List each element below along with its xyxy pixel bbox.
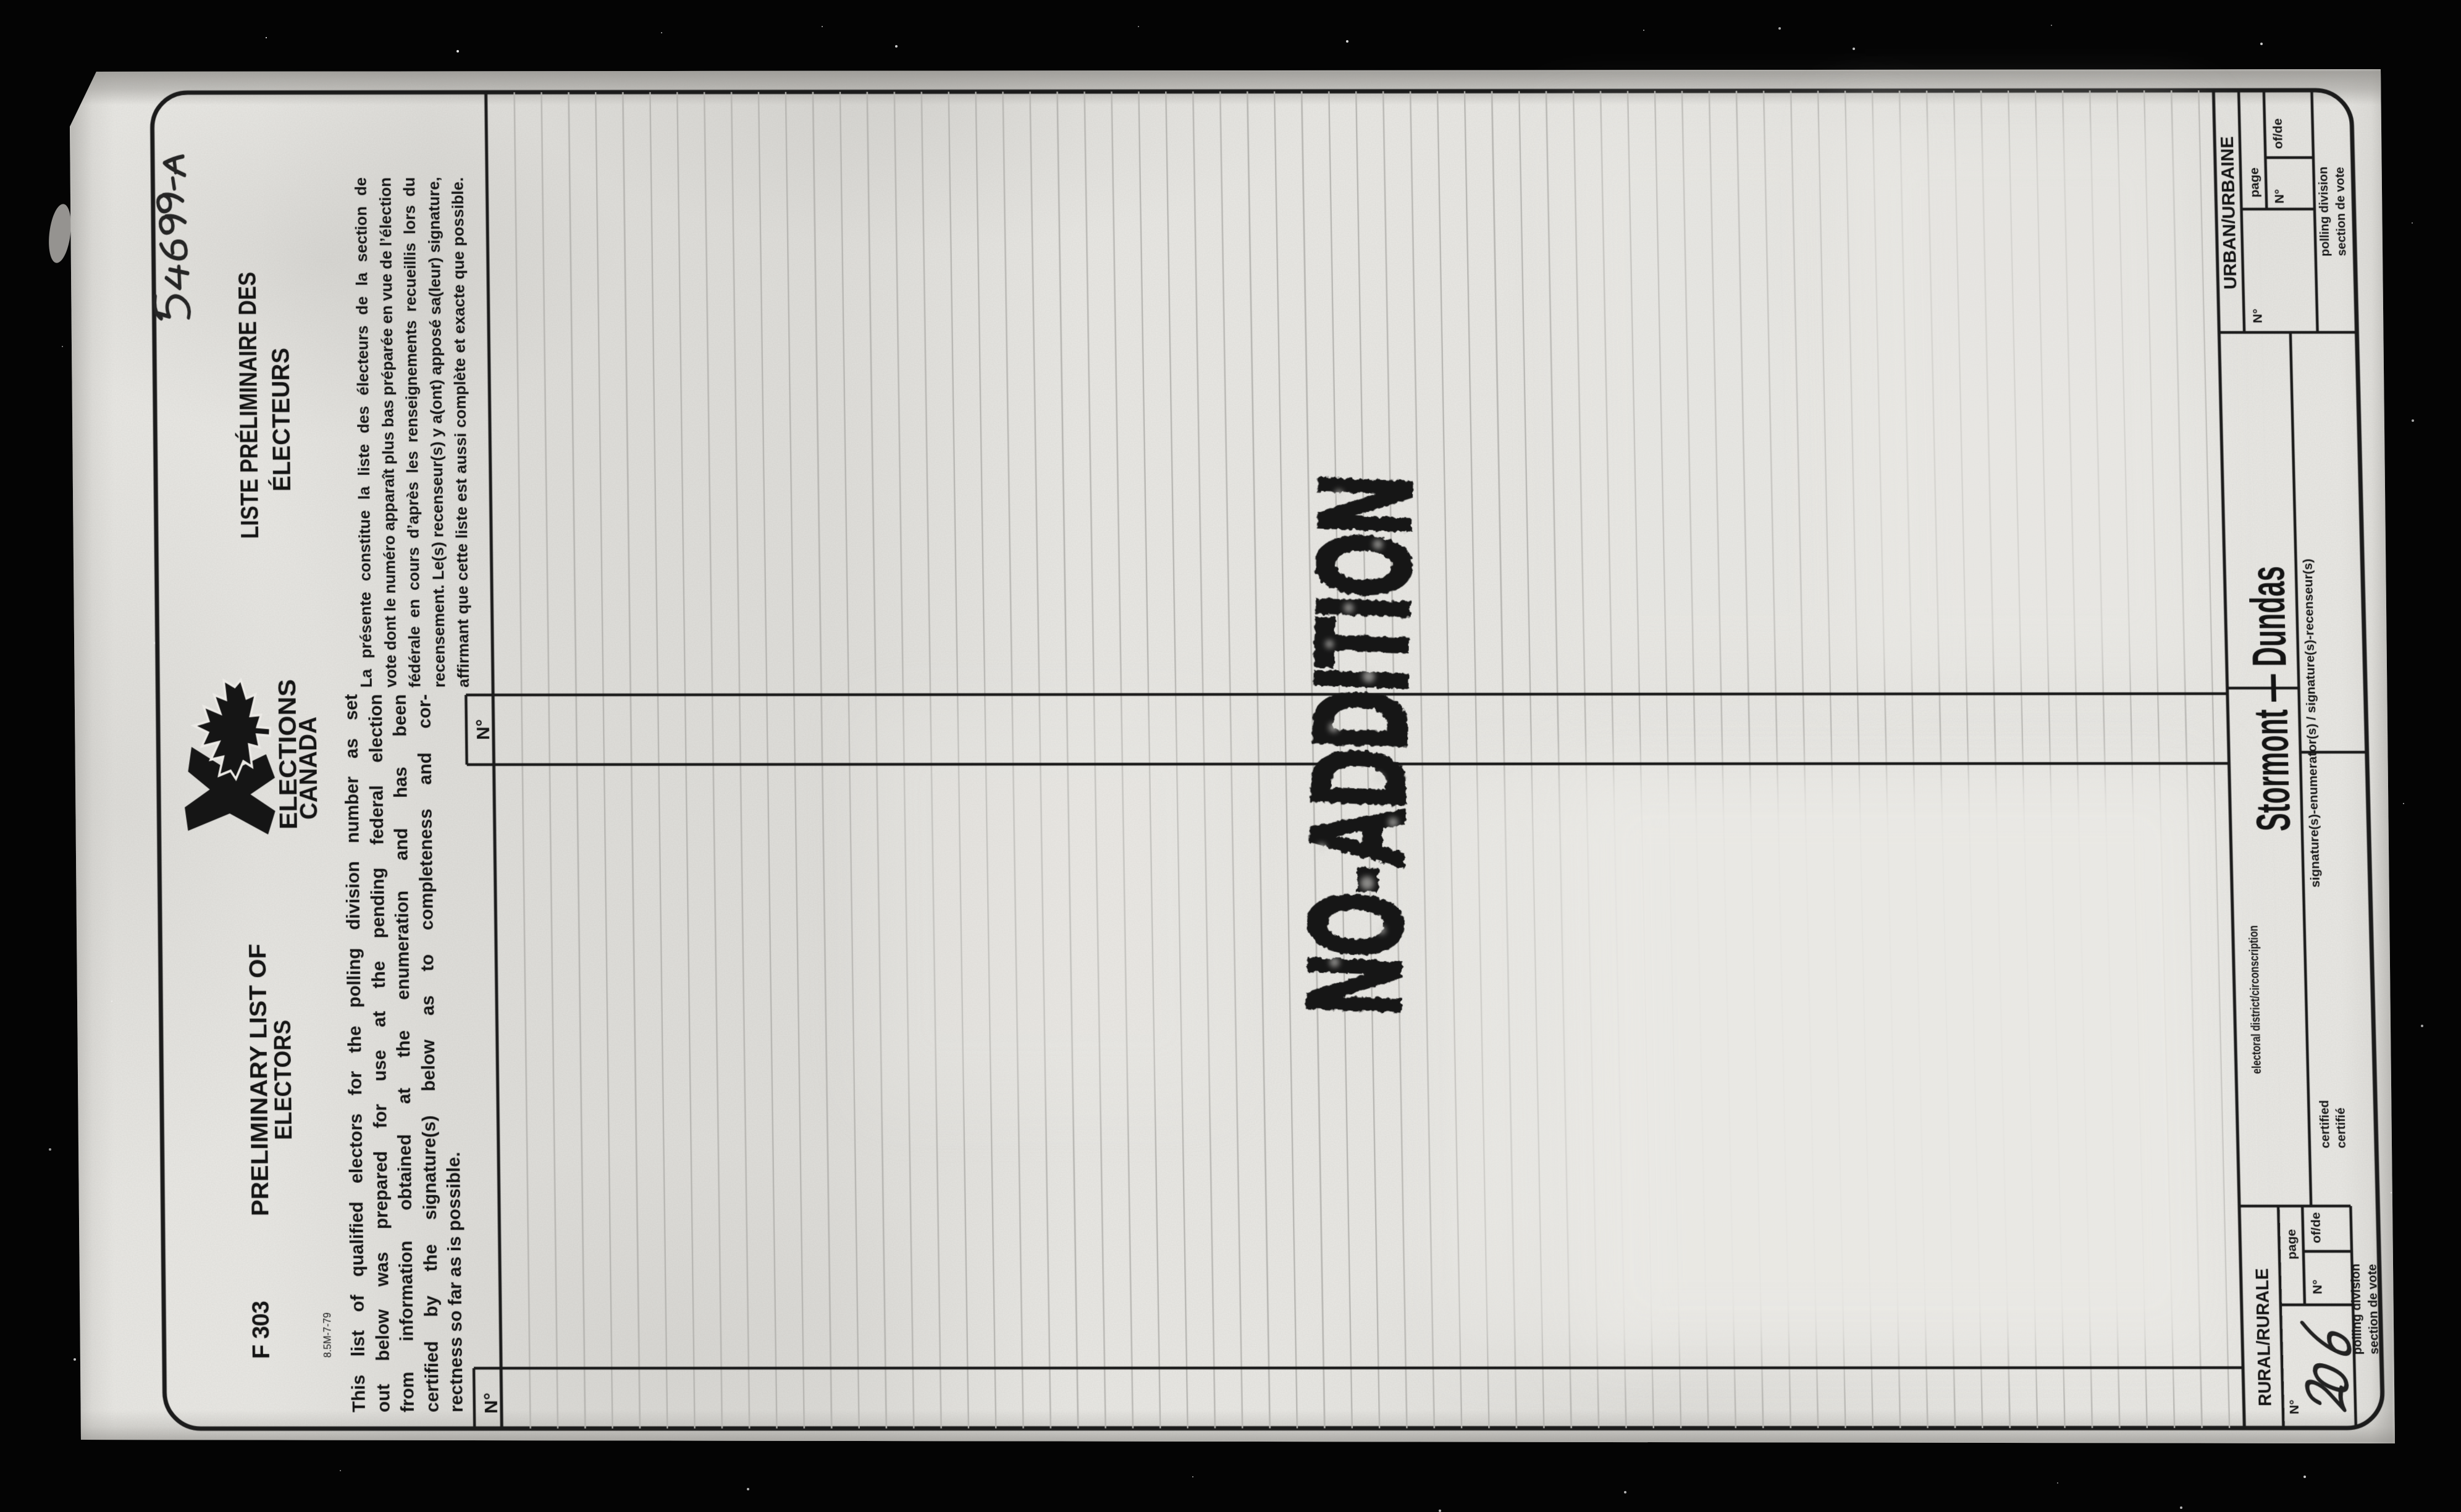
svg-text:from information obtained at t: from information obtained at the enumera… — [390, 694, 418, 1413]
svg-text:section de vote: section de vote — [2333, 167, 2349, 256]
svg-text:ELECTORS: ELECTORS — [269, 1020, 297, 1140]
svg-text:La présente constitue la liste: La présente constitue la liste des élect… — [351, 177, 376, 687]
svg-text:F 303: F 303 — [248, 1301, 275, 1359]
svg-text:certifié: certifié — [2334, 1107, 2349, 1148]
svg-text:recensement. Le(s) recenseur(s: recensement. Le(s) recenseur(s) y a(ont)… — [424, 177, 448, 687]
svg-text:Stormont — Dundas: Stormont — Dundas — [2240, 566, 2300, 831]
svg-text:N°: N° — [2272, 189, 2286, 203]
svg-text:N°: N° — [2287, 1400, 2302, 1414]
svg-text:certified: certified — [2318, 1100, 2333, 1148]
svg-text:N°: N° — [2310, 1280, 2325, 1295]
svg-text:RURAL/RURALE: RURAL/RURALE — [2252, 1268, 2275, 1406]
svg-text:8.5M-7-79: 8.5M-7-79 — [322, 1312, 334, 1358]
svg-text:of/de: of/de — [2271, 119, 2286, 149]
svg-text:N°: N° — [473, 719, 494, 740]
svg-text:CANADA: CANADA — [295, 716, 323, 820]
svg-text:ÉLECTEURS: ÉLECTEURS — [266, 348, 296, 492]
svg-text:polling division: polling division — [2316, 167, 2332, 256]
svg-text:N°: N° — [481, 1393, 502, 1414]
svg-text:affirmant que cette liste est: affirmant que cette liste est aussi comp… — [448, 177, 473, 687]
svg-text:signature(s)-enumerator(s) / s: signature(s)-enumerator(s) / signature(s… — [2301, 558, 2323, 888]
svg-text:vote dont le numéro apparaît p: vote dont le numéro apparaît plus bas pr… — [376, 177, 400, 687]
svg-text:fédérale en cours d’après les: fédérale en cours d’après les renseignem… — [400, 177, 424, 687]
svg-text:of/de: of/de — [2308, 1212, 2323, 1243]
svg-text:This list of qualified elector: This list of qualified electors for the … — [341, 694, 369, 1413]
svg-text:out below was prepared for use: out below was prepared for use at the pe… — [366, 694, 394, 1413]
svg-text:LISTE PRÉLIMINAIRE DES: LISTE PRÉLIMINAIRE DES — [233, 272, 264, 539]
svg-text:page: page — [2284, 1229, 2299, 1259]
svg-text:NO-ADDITION: NO-ADDITION — [1281, 473, 1437, 1017]
svg-text:polling division: polling division — [2349, 1264, 2365, 1355]
svg-text:section de vote: section de vote — [2366, 1264, 2382, 1354]
svg-text:page: page — [2247, 167, 2262, 198]
svg-text:rectness so far as is possible: rectness so far as is possible. — [444, 1152, 467, 1413]
svg-text:N°: N° — [2250, 309, 2265, 323]
svg-text:URBAN/URBAINE: URBAN/URBAINE — [2217, 136, 2241, 290]
svg-text:electoral district/circonscrip: electoral district/circonscription — [2247, 925, 2264, 1074]
svg-text:certified by the signature(s): certified by the signature(s) below as t… — [414, 694, 442, 1413]
